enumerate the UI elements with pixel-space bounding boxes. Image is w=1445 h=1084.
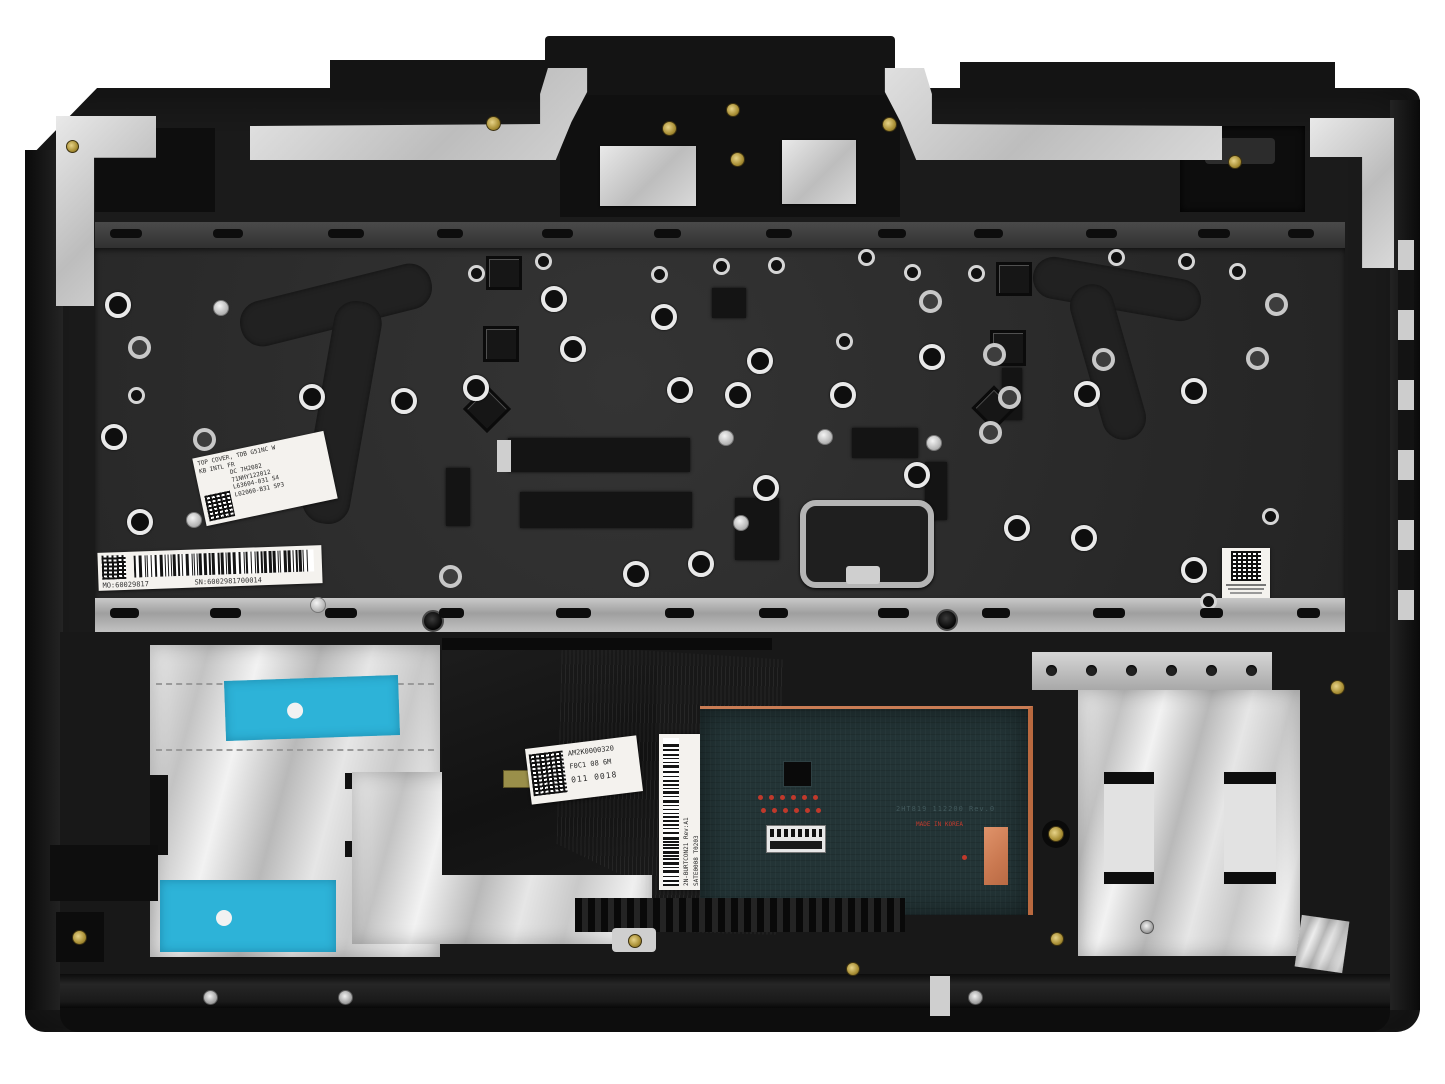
pad-hole <box>216 910 232 926</box>
screw-hole-eyelet <box>623 561 649 587</box>
red-test-point <box>805 808 810 813</box>
brass-screw <box>72 930 87 945</box>
rail-slot <box>878 229 906 238</box>
red-test-point <box>761 808 766 813</box>
qr-label-textline <box>1226 584 1266 586</box>
screw-hole-eyelet <box>919 344 945 370</box>
mo-number: MO:60029817 <box>102 580 149 590</box>
tape-strip <box>508 438 690 472</box>
plate-cutout <box>996 262 1032 296</box>
brass-screw <box>1050 932 1064 946</box>
brass-screw <box>1330 680 1345 695</box>
brass-screw <box>1228 155 1242 169</box>
screw-hole-eyelet <box>718 430 734 446</box>
rail-slot <box>1288 229 1314 238</box>
speaker-foil-right <box>1078 690 1300 956</box>
cable-label-line: 011 0018 <box>571 770 618 786</box>
screw-hole-eyelet <box>904 462 930 488</box>
touchpad-module: 2HT819 112200 Rev.0 MADE IN KOREA <box>700 706 1033 915</box>
screw-hole-eyelet <box>310 597 326 613</box>
brass-screw <box>730 152 745 167</box>
hex-screw <box>203 990 218 1005</box>
screw-hole-eyelet <box>968 265 985 282</box>
brass-screw-star <box>1048 826 1064 842</box>
red-test-point <box>962 855 967 860</box>
cable-label-line: AM2K0000320 <box>567 744 614 758</box>
screw-hole-eyelet <box>651 304 677 330</box>
screw-hole-eyelet <box>733 515 749 531</box>
hinge-bracket-right <box>830 64 1222 164</box>
screw-hole-eyelet <box>213 300 229 316</box>
hex-screw <box>1140 920 1154 934</box>
rail-slot <box>766 229 792 238</box>
qr-label-right <box>1222 548 1270 598</box>
screw-hole-eyelet <box>817 429 833 445</box>
test-point-dots <box>758 795 828 821</box>
rail-slot <box>665 608 694 618</box>
screw-hole-eyelet <box>1004 515 1030 541</box>
brass-screw <box>486 116 501 131</box>
copper-sticker <box>984 827 1008 885</box>
screw-hole-eyelet <box>836 333 853 350</box>
bottom-frame-groove <box>60 974 1390 1008</box>
rail-slot <box>1198 229 1230 238</box>
screw-hole-eyelet <box>560 336 586 362</box>
screw-hole-eyelet <box>535 253 552 270</box>
rail-slot <box>1093 608 1125 618</box>
rail-slot <box>110 608 139 618</box>
black-block-bottom-left <box>50 845 158 901</box>
screw-hole-eyelet <box>186 512 202 528</box>
qr-label-textline <box>1230 592 1262 594</box>
screw-boss <box>936 609 958 631</box>
screw-hole-eyelet <box>1074 381 1100 407</box>
bottom-vent-teeth <box>575 898 905 932</box>
barcode <box>134 549 315 577</box>
center-bracket-tab <box>846 566 880 584</box>
screw-hole-eyelet <box>983 343 1006 366</box>
rail-slot <box>878 608 909 618</box>
screw-hole-eyelet <box>1246 347 1269 370</box>
adhesive-pad-blue-bottom <box>160 880 336 952</box>
red-test-point <box>802 795 807 800</box>
vertical-label-line: 2N-BURTCON21 Rev:A1 <box>683 817 690 886</box>
right-foil-top-strip <box>1032 652 1272 690</box>
screw-hole-eyelet <box>688 551 714 577</box>
screw-hole-eyelet <box>1262 508 1279 525</box>
rail-slot <box>210 608 241 618</box>
rail-slot <box>542 229 573 238</box>
rail-slot <box>110 229 142 238</box>
foil-cutout-window <box>1104 772 1154 884</box>
tape-patch <box>852 428 918 458</box>
hex-screw <box>338 990 353 1005</box>
touchpad-origin-text: MADE IN KOREA <box>916 821 963 828</box>
vertical-label-line: SATE0008 T0203 <box>693 835 700 886</box>
screw-hole-eyelet <box>904 264 921 281</box>
qr-code-icon <box>204 491 235 522</box>
screw-hole-eyelet <box>1108 249 1125 266</box>
screw-hole-eyelet <box>830 382 856 408</box>
touchpad-pcb-text: 2HT819 112200 Rev.0 <box>896 805 995 813</box>
ffc-connector-teeth <box>770 829 822 837</box>
rail-slot <box>325 608 357 618</box>
tape-patch <box>712 288 746 318</box>
qr-label-textline <box>1228 588 1264 590</box>
qr-code-icon <box>1231 551 1261 581</box>
rail-slot <box>556 608 591 618</box>
rail-slot <box>213 229 243 238</box>
tape-patch <box>446 468 470 526</box>
barcode <box>663 738 679 886</box>
screw-hole-eyelet <box>713 258 730 275</box>
rail-slot <box>439 608 464 618</box>
mo-sn-barcode-label: MO:60029817 SN:6002981700014 <box>97 545 322 591</box>
tape-strip <box>520 492 692 528</box>
strip-rivet <box>1126 665 1137 676</box>
screw-hole-eyelet <box>1181 378 1207 404</box>
screw-hole-eyelet <box>128 336 151 359</box>
screw-hole-eyelet <box>468 265 485 282</box>
brass-screw <box>628 934 642 948</box>
red-test-point <box>783 808 788 813</box>
hinge-bracket-left <box>250 64 642 164</box>
brass-screw <box>846 962 860 976</box>
foil-tab-corner <box>1295 915 1350 973</box>
screw-hole-eyelet <box>1181 557 1207 583</box>
rail-slot <box>328 229 364 238</box>
screw-hole-eyelet <box>1071 525 1097 551</box>
red-test-point <box>816 808 821 813</box>
brass-screw <box>66 140 79 153</box>
screw-hole-eyelet <box>299 384 325 410</box>
screw-hole-eyelet <box>651 266 668 283</box>
red-test-point <box>780 795 785 800</box>
rail-slot <box>1297 608 1320 618</box>
red-test-point <box>758 795 763 800</box>
red-test-point <box>791 795 796 800</box>
sn-number: SN:6002981700014 <box>194 576 262 586</box>
screw-hole-eyelet <box>998 386 1021 409</box>
screw-plate-center-right <box>782 140 856 204</box>
strip-rivet <box>1086 665 1097 676</box>
screw-hole-eyelet <box>725 382 751 408</box>
tape-strip-clip <box>497 440 511 472</box>
rail-slot <box>437 229 463 238</box>
adhesive-pad-blue-top <box>224 675 400 741</box>
rail-slot <box>982 608 1010 618</box>
screw-hole-eyelet <box>667 377 693 403</box>
rail-slot <box>654 229 681 238</box>
rail-slot <box>759 608 788 618</box>
screw-hole-eyelet <box>919 290 942 313</box>
touchpad-chip <box>783 761 812 787</box>
ffc-connector-body <box>770 841 822 849</box>
cable-fold-edge <box>442 638 772 650</box>
keyboard-top-rail <box>95 222 1345 248</box>
screw-hole-eyelet <box>391 388 417 414</box>
screw-hole-eyelet <box>979 421 1002 444</box>
foil-cutout <box>150 775 168 855</box>
screw-hole-eyelet <box>1092 348 1115 371</box>
rail-slot <box>1086 229 1117 238</box>
screw-hole-eyelet <box>926 435 942 451</box>
screw-hole-eyelet <box>1178 253 1195 270</box>
screw-hole-eyelet <box>439 565 462 588</box>
red-test-point <box>794 808 799 813</box>
screw-hole-eyelet <box>127 509 153 535</box>
product-photo: TOP COVER, TDB G51NC W KB INTL FR DC 7H2… <box>0 0 1445 1084</box>
screw-hole-eyelet <box>105 292 131 318</box>
screw-hole-eyelet <box>1229 263 1246 280</box>
screw-hole-eyelet <box>101 424 127 450</box>
mid-rail <box>95 598 1345 632</box>
screw-hole-eyelet <box>753 475 779 501</box>
brass-screw <box>726 103 740 117</box>
foil-cutout-window <box>1224 772 1276 884</box>
rail-slot <box>1200 608 1223 618</box>
red-test-point <box>769 795 774 800</box>
foil-perforation <box>156 749 434 751</box>
qr-code-icon <box>102 555 127 580</box>
screw-hole-eyelet <box>747 348 773 374</box>
ffc-connector <box>766 825 826 853</box>
strip-rivet <box>1166 665 1177 676</box>
rail-slot <box>974 229 1003 238</box>
right-edge-port-tabs <box>1398 240 1414 620</box>
bottom-frame-edge <box>60 1008 1390 1032</box>
screw-plate-center-left <box>600 146 696 206</box>
screw-hole-eyelet <box>193 428 216 451</box>
strip-rivet <box>1046 665 1057 676</box>
cable-label-line: F0C1 08 6M <box>569 757 616 771</box>
screw-hole-eyelet <box>768 257 785 274</box>
screw-hole-eyelet <box>128 387 145 404</box>
red-test-point <box>772 808 777 813</box>
plate-cutout <box>483 326 519 362</box>
brass-screw <box>662 121 677 136</box>
screw-hole-eyelet <box>463 375 489 401</box>
screw-hole-eyelet <box>1265 293 1288 316</box>
strip-rivet <box>1206 665 1217 676</box>
red-test-point <box>813 795 818 800</box>
pad-hole <box>287 702 304 719</box>
qr-code-icon <box>529 750 568 796</box>
plate-cutout <box>486 256 522 290</box>
screw-hole-eyelet <box>541 286 567 312</box>
strip-rivet <box>1246 665 1257 676</box>
screw-hole-eyelet <box>858 249 875 266</box>
bracket-plate <box>930 976 950 1016</box>
brass-screw <box>882 117 897 132</box>
hex-screw <box>968 990 983 1005</box>
